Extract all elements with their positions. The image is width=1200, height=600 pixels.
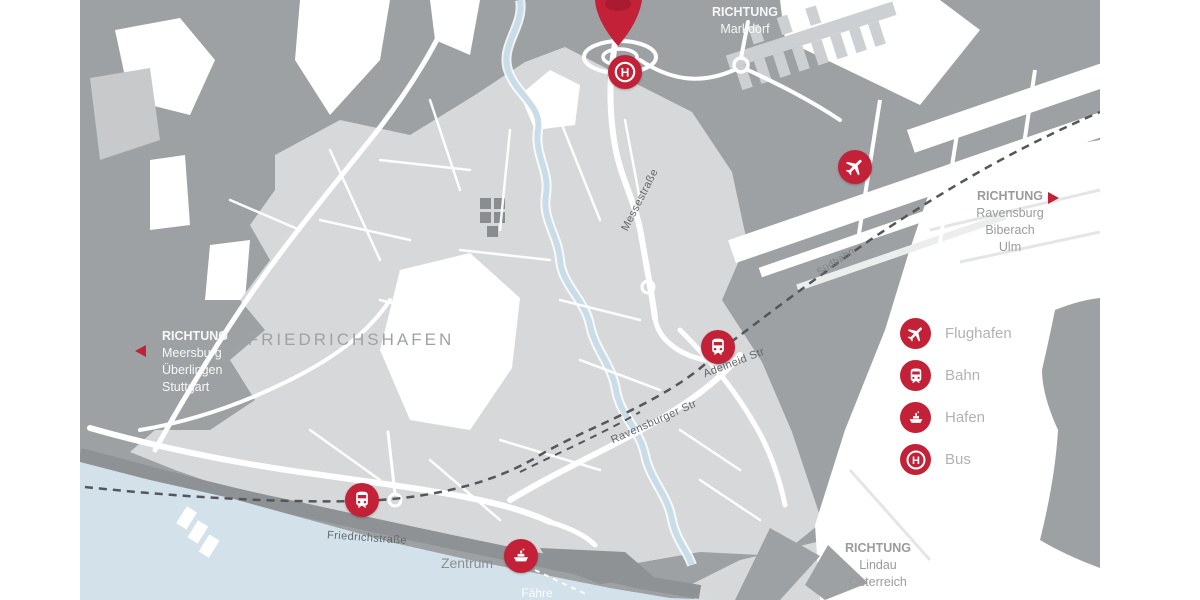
bus-stop-marker: H: [608, 55, 642, 89]
map-stage: H: [0, 0, 1200, 600]
airport-marker: [838, 150, 872, 184]
legend-label: Flughafen: [945, 325, 1012, 342]
train-icon: [708, 337, 728, 357]
legend-label: Bus: [945, 451, 971, 468]
ferry-label: Fähre: [521, 586, 552, 600]
plane-icon: [901, 319, 929, 347]
map-canvas: [80, 0, 1100, 600]
ship-icon: [511, 546, 531, 566]
direction-ravensburg: RICHTUNG Ravensburg Biberach Ulm: [976, 188, 1043, 256]
bus-icon: H: [904, 448, 928, 472]
direction-markdorf: RICHTUNG Markdorf: [712, 4, 778, 38]
train-icon: [907, 367, 925, 385]
direction-arrow-left-icon: [135, 345, 146, 357]
city-label: FRIEDRICHSHAFEN: [248, 330, 455, 350]
train-marker-city: [345, 483, 379, 517]
direction-meersburg: RICHTUNG Meersburg Überlingen Stuttgart: [162, 328, 228, 396]
legend-label: Bahn: [945, 367, 980, 384]
place-label-zentrum: Zentrum: [441, 555, 493, 571]
plane-icon: [839, 151, 870, 182]
direction-lindau: RICHTUNG Lindau Österreich: [845, 540, 911, 591]
legend: Flughafen Bahn: [900, 318, 1012, 486]
bus-icon: H: [612, 59, 638, 85]
legend-item-hafen: Hafen: [900, 402, 1012, 433]
harbor-marker: [504, 539, 538, 573]
direction-arrow-right-icon: [1048, 192, 1059, 204]
friedrichshafen-map: H: [80, 0, 1100, 600]
svg-text:H: H: [621, 65, 630, 79]
train-icon: [352, 490, 372, 510]
legend-item-flughafen: Flughafen: [900, 318, 1012, 349]
ship-icon: [907, 409, 925, 427]
legend-label: Hafen: [945, 409, 985, 426]
legend-item-bahn: Bahn: [900, 360, 1012, 391]
svg-text:H: H: [912, 455, 920, 467]
legend-item-bus: H Bus: [900, 444, 1012, 475]
